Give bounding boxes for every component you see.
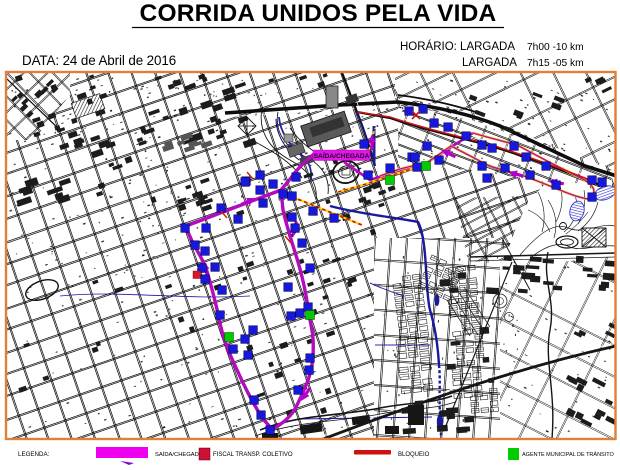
svg-text:HORÁRIO: LARGADA: HORÁRIO: LARGADA xyxy=(400,40,515,53)
svg-text:7h15 -05 km: 7h15 -05 km xyxy=(527,58,584,69)
svg-text:LARGADA: LARGADA xyxy=(462,57,517,69)
svg-text:7h00 -10 km: 7h00 -10 km xyxy=(527,42,584,53)
svg-text:FISCAL TRANSP. COLETIVO: FISCAL TRANSP. COLETIVO xyxy=(213,452,293,458)
svg-text:CORRIDA UNIDOS PELA VIDA: CORRIDA UNIDOS PELA VIDA xyxy=(140,0,497,27)
svg-text:SAÍDA/CHEGADA: SAÍDA/CHEGADA xyxy=(155,451,203,458)
svg-text:BLOQUEIO: BLOQUEIO xyxy=(398,452,430,458)
svg-text:LEGENDA:: LEGENDA: xyxy=(18,451,50,458)
svg-text:AGENTE MUNICIPAL DE TRÂNSITO: AGENTE MUNICIPAL DE TRÂNSITO xyxy=(522,451,615,458)
svg-text:DATA: 24 de Abril de 2016: DATA: 24 de Abril de 2016 xyxy=(22,53,176,68)
svg-text:SAÍDA/CHEGADA: SAÍDA/CHEGADA xyxy=(314,151,370,160)
